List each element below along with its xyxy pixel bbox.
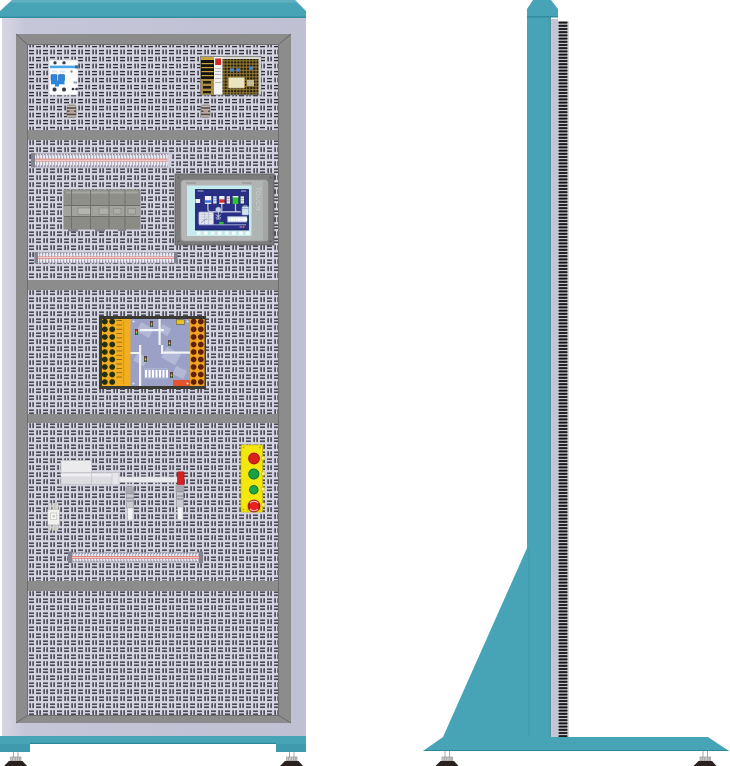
svg-text:TOUCH: TOUCH	[254, 187, 261, 211]
